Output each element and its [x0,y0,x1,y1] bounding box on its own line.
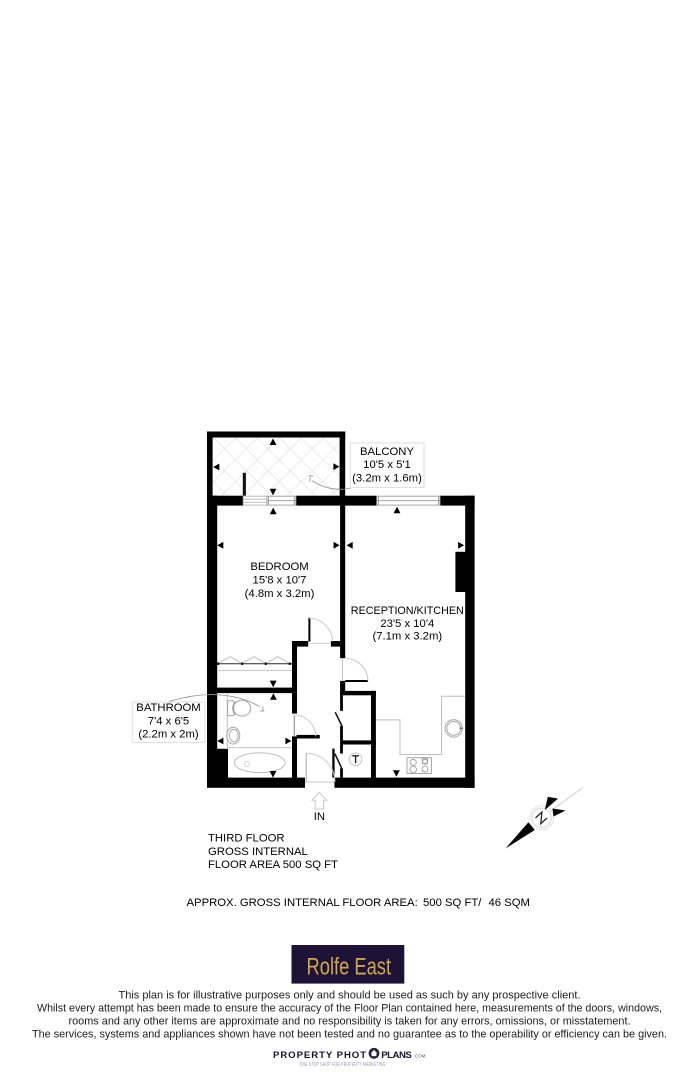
svg-text:(7.1m x 3.2m): (7.1m x 3.2m) [372,631,442,643]
svg-text:THIRD FLOOR: THIRD FLOOR [208,833,285,845]
svg-text:500 SQ FT/: 500 SQ FT/ [423,897,482,909]
svg-text:FLOOR AREA 500 SQ FT: FLOOR AREA 500 SQ FT [208,859,338,871]
svg-text:ONE STOP SHOP FOR PROPERTY MAR: ONE STOP SHOP FOR PROPERTY MARKETING [300,1062,386,1068]
svg-text:APPROX. GROSS INTERNAL FLOOR A: APPROX. GROSS INTERNAL FLOOR AREA: [187,897,418,909]
svg-text:BATHROOM: BATHROOM [136,702,200,714]
svg-text:46 SQM: 46 SQM [489,897,530,909]
svg-text:Rolfe East: Rolfe East [307,953,392,980]
svg-text:10'5 x 5'1: 10'5 x 5'1 [363,459,411,471]
svg-text:(2.2m x 2m): (2.2m x 2m) [138,728,198,740]
svg-text:15'8 x 10'7: 15'8 x 10'7 [253,575,307,587]
svg-text:GROSS INTERNAL: GROSS INTERNAL [208,846,308,858]
svg-text:Whilst every attempt has been: Whilst every attempt has been made to en… [37,1002,662,1014]
svg-text:PROPERTY PHOT: PROPERTY PHOT [273,1050,367,1061]
svg-text:(3.2m x 1.6m): (3.2m x 1.6m) [352,472,422,484]
svg-text:RECEPTION/KITCHEN: RECEPTION/KITCHEN [351,605,464,617]
svg-text:rooms and any other items are: rooms and any other items are approximat… [69,1015,631,1027]
svg-text:This plan is for illustrative: This plan is for illustrative purposes o… [119,989,581,1001]
svg-text:.COM: .COM [414,1054,426,1059]
svg-text:7'4 x 6'5: 7'4 x 6'5 [148,715,189,727]
svg-text:IN: IN [314,811,325,823]
svg-text:PLANS: PLANS [381,1050,412,1061]
svg-text:BALCONY: BALCONY [360,446,414,458]
svg-text:(4.8m x 3.2m): (4.8m x 3.2m) [245,588,315,600]
svg-text:The services, systems and appl: The services, systems and appliances sho… [32,1028,667,1040]
svg-text:BEDROOM: BEDROOM [250,561,308,573]
svg-text:23'5 x 10'4: 23'5 x 10'4 [380,618,434,630]
